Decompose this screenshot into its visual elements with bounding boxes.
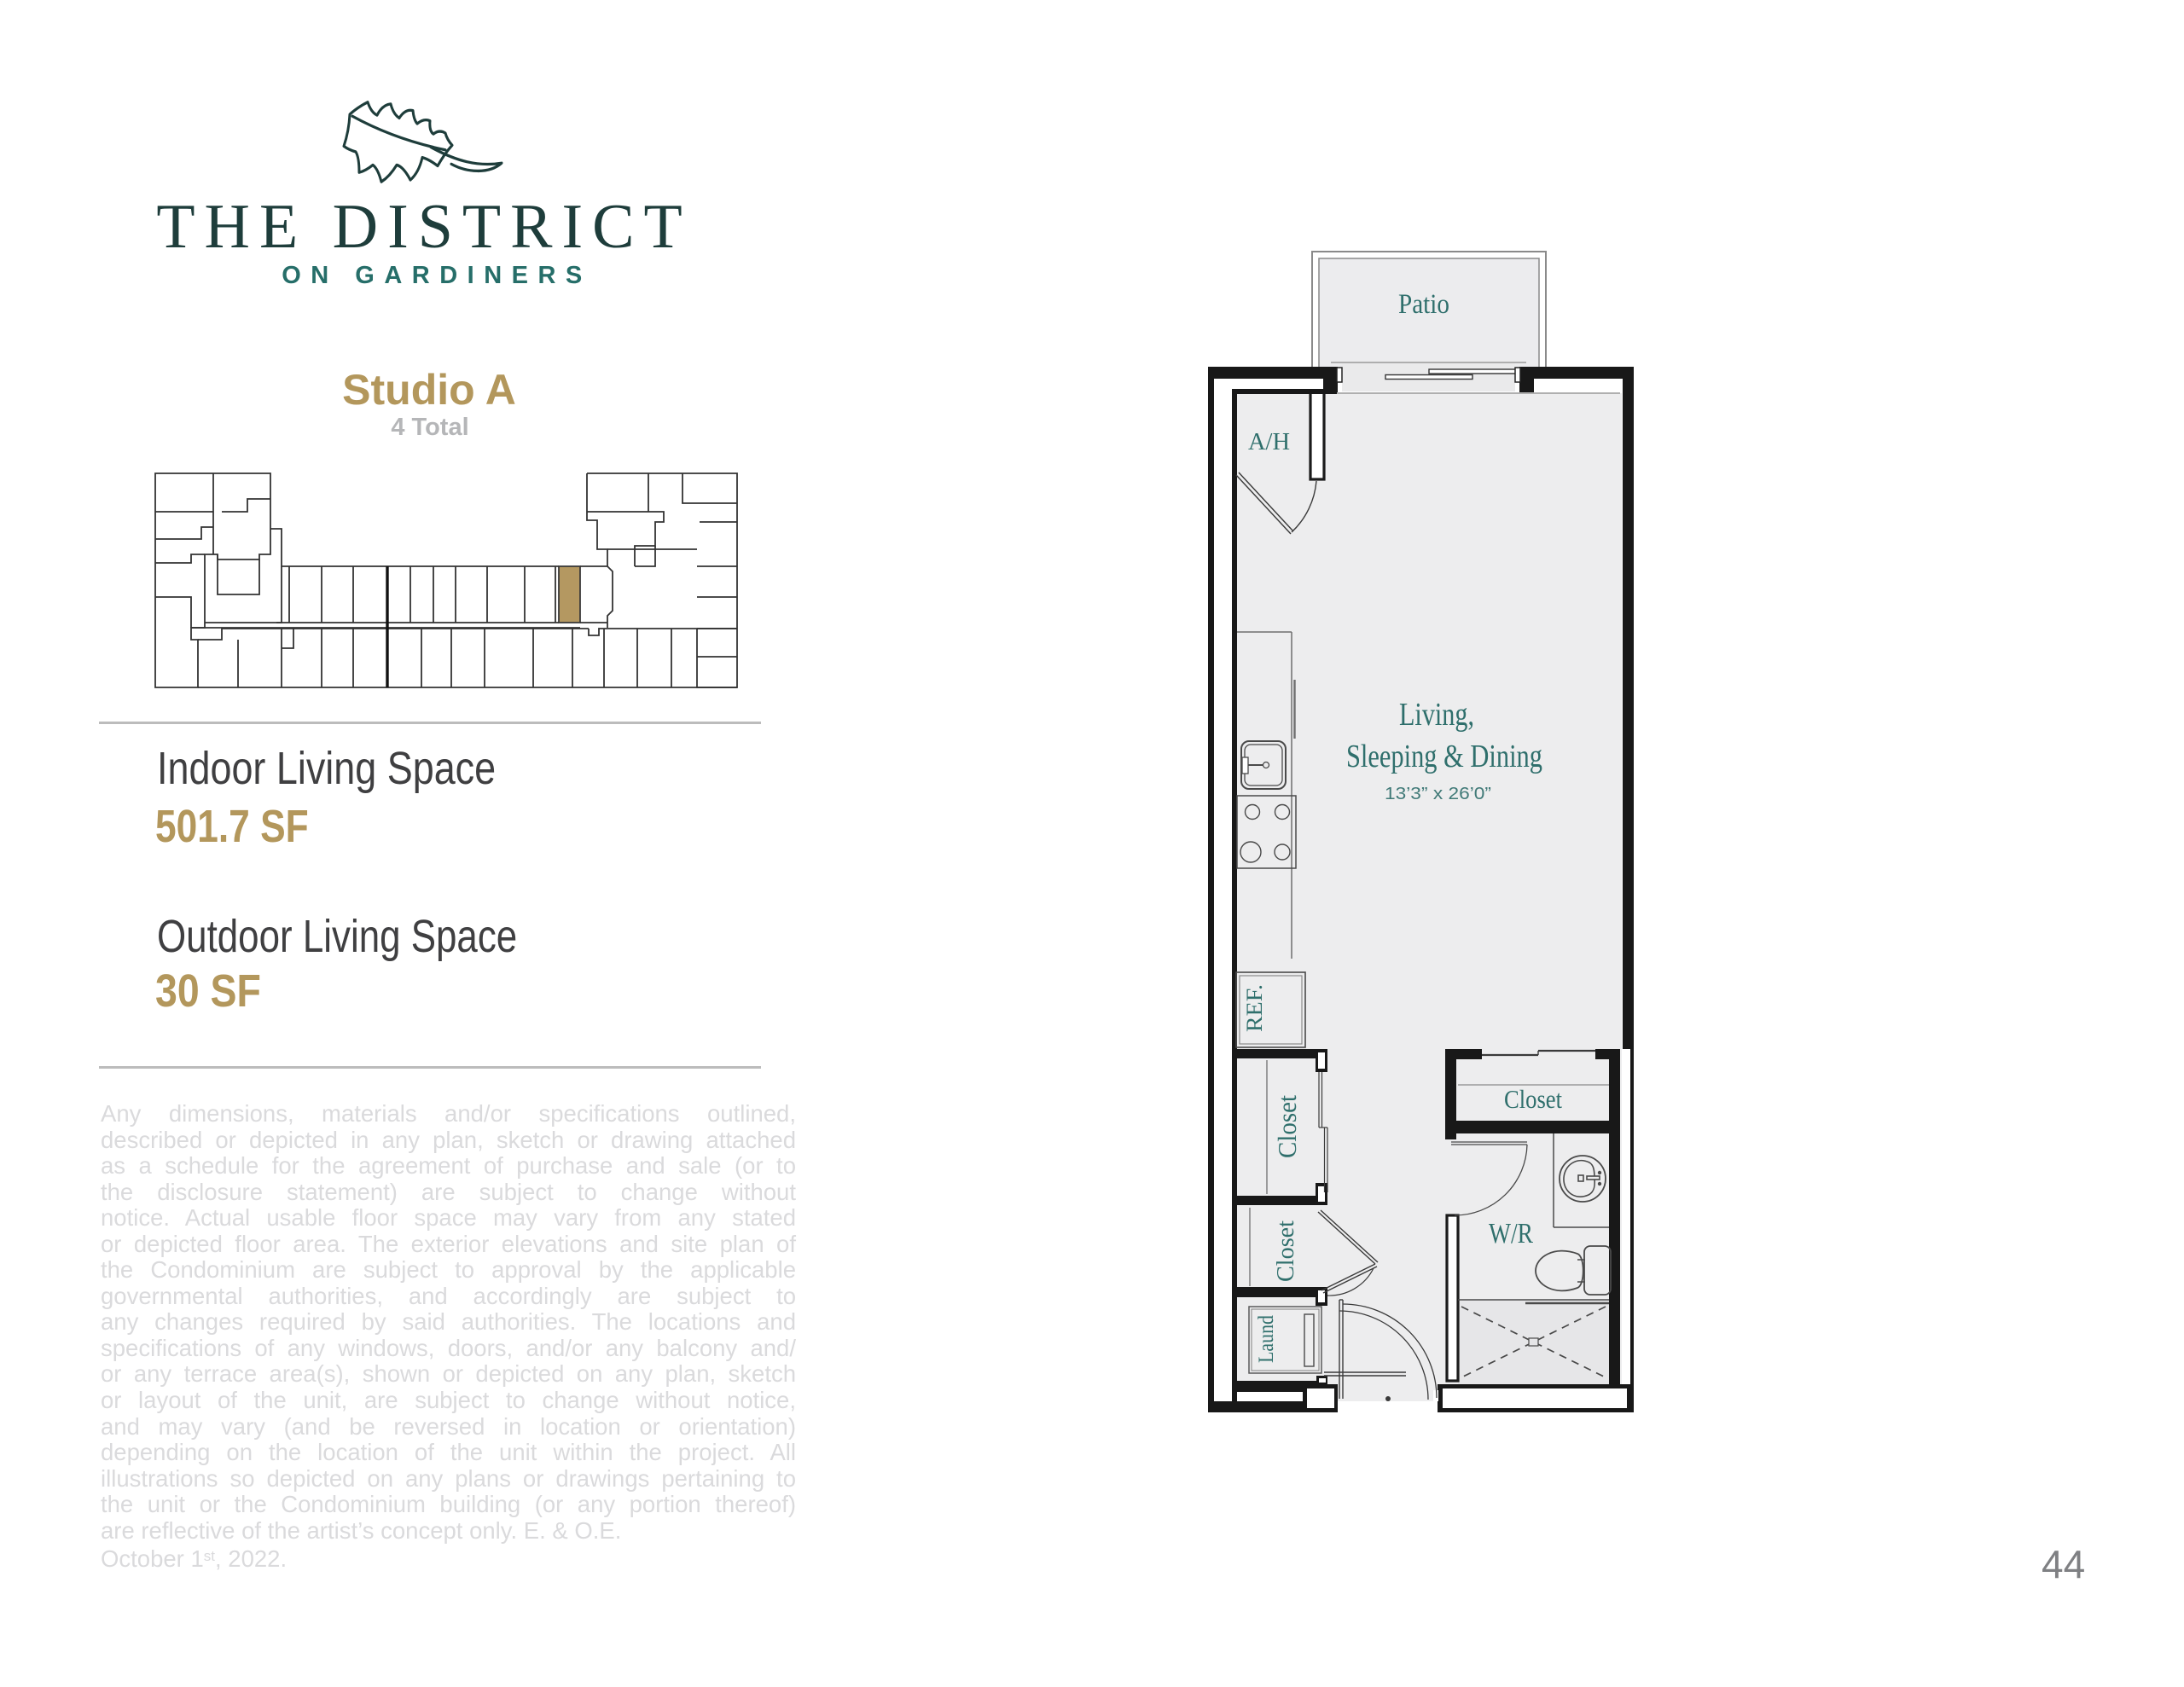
- svg-text:Closet: Closet: [1272, 1220, 1299, 1282]
- svg-text:Patio: Patio: [1398, 289, 1449, 320]
- svg-text:A/H: A/H: [1248, 428, 1290, 455]
- svg-text:13’3” x 26’0”: 13’3” x 26’0”: [1385, 785, 1491, 803]
- svg-text:Sleeping & Dining: Sleeping & Dining: [1346, 739, 1542, 774]
- svg-text:REF.: REF.: [1242, 984, 1267, 1032]
- svg-text:Laund: Laund: [1255, 1315, 1278, 1363]
- svg-text:Closet: Closet: [1504, 1084, 1562, 1114]
- svg-text:W/R: W/R: [1489, 1218, 1533, 1249]
- svg-text:Living,: Living,: [1399, 697, 1474, 733]
- svg-text:Closet: Closet: [1272, 1095, 1302, 1158]
